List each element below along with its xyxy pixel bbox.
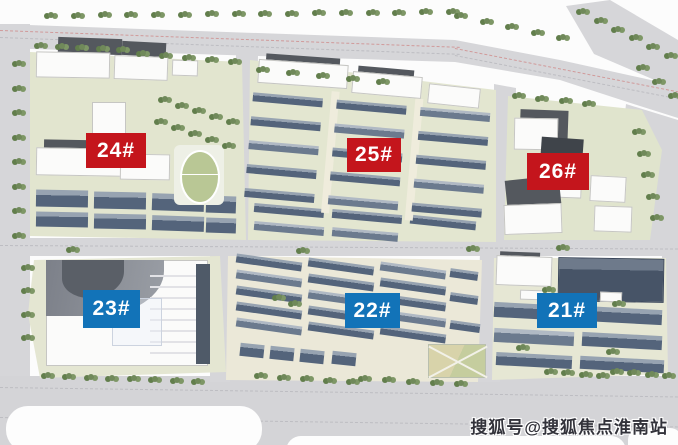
- tree-cluster: [163, 52, 169, 58]
- watermark-text: 搜狐号@搜狐焦点淮南站: [470, 413, 668, 438]
- tree-cluster: [672, 92, 678, 98]
- tree-cluster: [458, 380, 464, 386]
- tree-cluster: [650, 193, 656, 199]
- tree-cluster: [66, 373, 72, 379]
- tree-cluster: [327, 377, 333, 383]
- tree-cluster: [209, 56, 215, 62]
- block-label-22-text: 22#: [353, 299, 391, 323]
- tree-cluster: [583, 371, 589, 377]
- tree-cluster: [16, 232, 22, 238]
- tree-cluster: [539, 95, 545, 101]
- tree-cluster: [516, 92, 522, 98]
- tree-cluster: [226, 142, 232, 148]
- tree-cluster: [563, 97, 569, 103]
- tree-cluster: [236, 10, 242, 16]
- tree-cluster: [59, 43, 65, 49]
- tree-cluster: [470, 245, 476, 251]
- tree-cluster: [546, 286, 552, 292]
- tree-cluster: [631, 369, 637, 375]
- tree-cluster: [209, 136, 215, 142]
- tree-cluster: [548, 368, 554, 374]
- tree-cluster: [102, 11, 108, 17]
- tree-cluster: [174, 377, 180, 383]
- white-mask: [6, 406, 262, 445]
- tree-cluster: [300, 247, 306, 253]
- block-label-25[interactable]: 25#: [347, 138, 401, 172]
- tree-cluster: [560, 244, 566, 250]
- tree-cluster: [636, 128, 642, 134]
- tree-cluster: [195, 378, 201, 384]
- tree-cluster: [16, 85, 22, 91]
- tree-cluster: [396, 9, 402, 15]
- tree-cluster: [230, 118, 236, 124]
- tree-cluster: [610, 348, 616, 354]
- tree-cluster: [565, 369, 571, 375]
- tree-cluster: [196, 107, 202, 113]
- tree-cluster: [182, 11, 188, 17]
- tree-cluster: [155, 11, 161, 17]
- tree-cluster: [600, 372, 606, 378]
- block-label-23[interactable]: 23#: [83, 290, 140, 328]
- tree-cluster: [362, 375, 368, 381]
- tree-cluster: [650, 43, 656, 49]
- tree-cluster: [25, 287, 31, 293]
- tree-cluster: [458, 12, 464, 18]
- tree-cluster: [350, 75, 356, 81]
- tree-cluster: [45, 372, 51, 378]
- tree-cluster: [186, 54, 192, 60]
- tree-cluster: [434, 379, 440, 385]
- tree-cluster: [16, 134, 22, 140]
- tree-cluster: [654, 214, 660, 220]
- tree-cluster: [25, 311, 31, 317]
- tree-cluster: [535, 29, 541, 35]
- tree-cluster: [645, 171, 651, 177]
- tree-cluster: [668, 52, 674, 58]
- tree-cluster: [649, 371, 655, 377]
- tree-cluster: [158, 118, 164, 124]
- trees-layer: [0, 0, 678, 445]
- tree-cluster: [209, 10, 215, 16]
- tree-cluster: [484, 18, 490, 24]
- tree-cluster: [16, 60, 22, 66]
- tree-cluster: [179, 102, 185, 108]
- tree-cluster: [450, 8, 456, 14]
- tree-cluster: [380, 78, 386, 84]
- tree-cluster: [48, 12, 54, 18]
- tree-cluster: [131, 375, 137, 381]
- tree-cluster: [343, 9, 349, 15]
- tree-cluster: [25, 264, 31, 270]
- tree-cluster: [262, 10, 268, 16]
- tree-cluster: [128, 11, 134, 17]
- tree-cluster: [656, 78, 662, 84]
- site-plan-map: 24# 25# 26# 23# 22# 21# 搜狐号@搜狐焦点淮南站: [0, 0, 678, 445]
- tree-cluster: [509, 23, 515, 29]
- tree-cluster: [276, 294, 282, 300]
- block-label-23-text: 23#: [92, 297, 130, 321]
- tree-cluster: [192, 130, 198, 136]
- tree-cluster: [386, 376, 392, 382]
- tree-cluster: [109, 375, 115, 381]
- block-label-26[interactable]: 26#: [527, 153, 589, 190]
- tree-cluster: [232, 58, 238, 64]
- tree-cluster: [281, 374, 287, 380]
- tree-cluster: [88, 374, 94, 380]
- block-label-25-text: 25#: [355, 143, 393, 167]
- tree-cluster: [520, 344, 526, 350]
- tree-cluster: [320, 72, 326, 78]
- block-label-24[interactable]: 24#: [86, 133, 146, 168]
- tree-cluster: [598, 17, 604, 23]
- tree-cluster: [25, 334, 31, 340]
- tree-cluster: [614, 368, 620, 374]
- tree-cluster: [560, 34, 566, 40]
- tree-cluster: [38, 42, 44, 48]
- tree-cluster: [350, 378, 356, 384]
- tree-cluster: [370, 9, 376, 15]
- tree-cluster: [175, 124, 181, 130]
- tree-cluster: [70, 246, 76, 252]
- tree-cluster: [258, 372, 264, 378]
- block-label-21-text: 21#: [548, 299, 586, 323]
- tree-cluster: [666, 372, 672, 378]
- tree-cluster: [120, 46, 126, 52]
- tree-cluster: [292, 300, 298, 306]
- tree-cluster: [616, 300, 622, 306]
- tree-cluster: [289, 10, 295, 16]
- tree-cluster: [16, 109, 22, 115]
- tree-cluster: [304, 375, 310, 381]
- tree-cluster: [152, 376, 158, 382]
- tree-cluster: [213, 113, 219, 119]
- tree-cluster: [79, 44, 85, 50]
- block-label-21[interactable]: 21#: [537, 293, 597, 328]
- tree-cluster: [16, 183, 22, 189]
- tree-cluster: [162, 96, 168, 102]
- tree-cluster: [75, 12, 81, 18]
- tree-cluster: [586, 100, 592, 106]
- tree-cluster: [140, 50, 146, 56]
- tree-cluster: [16, 158, 22, 164]
- tree-cluster: [633, 34, 639, 40]
- tree-cluster: [16, 207, 22, 213]
- tree-cluster: [316, 9, 322, 15]
- block-label-22[interactable]: 22#: [345, 293, 400, 328]
- tree-cluster: [615, 26, 621, 32]
- tree-cluster: [290, 69, 296, 75]
- tree-cluster: [100, 45, 106, 51]
- tree-cluster: [640, 64, 646, 70]
- tree-cluster: [410, 378, 416, 384]
- tree-cluster: [423, 8, 429, 14]
- tree-cluster: [580, 8, 586, 14]
- tree-cluster: [641, 150, 647, 156]
- tree-cluster: [260, 66, 266, 72]
- block-label-26-text: 26#: [539, 160, 577, 184]
- block-label-24-text: 24#: [97, 139, 135, 163]
